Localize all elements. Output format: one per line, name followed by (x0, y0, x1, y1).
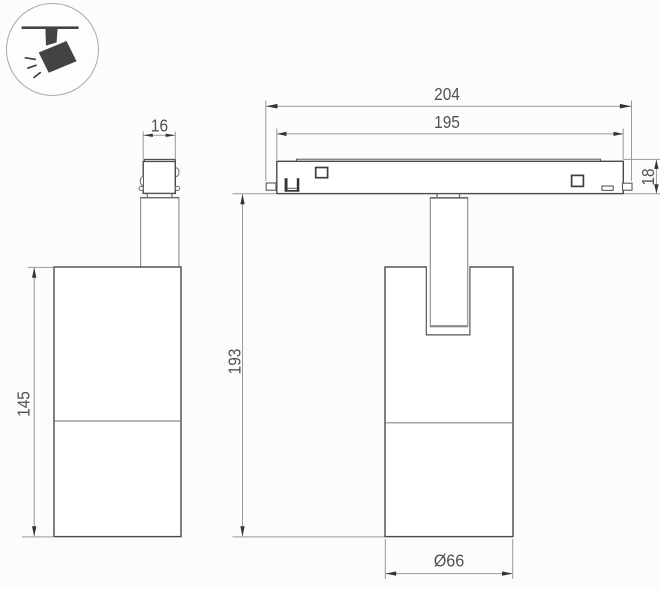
svg-text:Ø66: Ø66 (434, 551, 465, 571)
svg-text:18: 18 (638, 168, 658, 185)
svg-text:145: 145 (13, 391, 33, 417)
svg-text:16: 16 (151, 115, 168, 135)
svg-text:193: 193 (224, 349, 244, 375)
svg-text:195: 195 (434, 112, 460, 132)
svg-text:204: 204 (434, 84, 460, 104)
